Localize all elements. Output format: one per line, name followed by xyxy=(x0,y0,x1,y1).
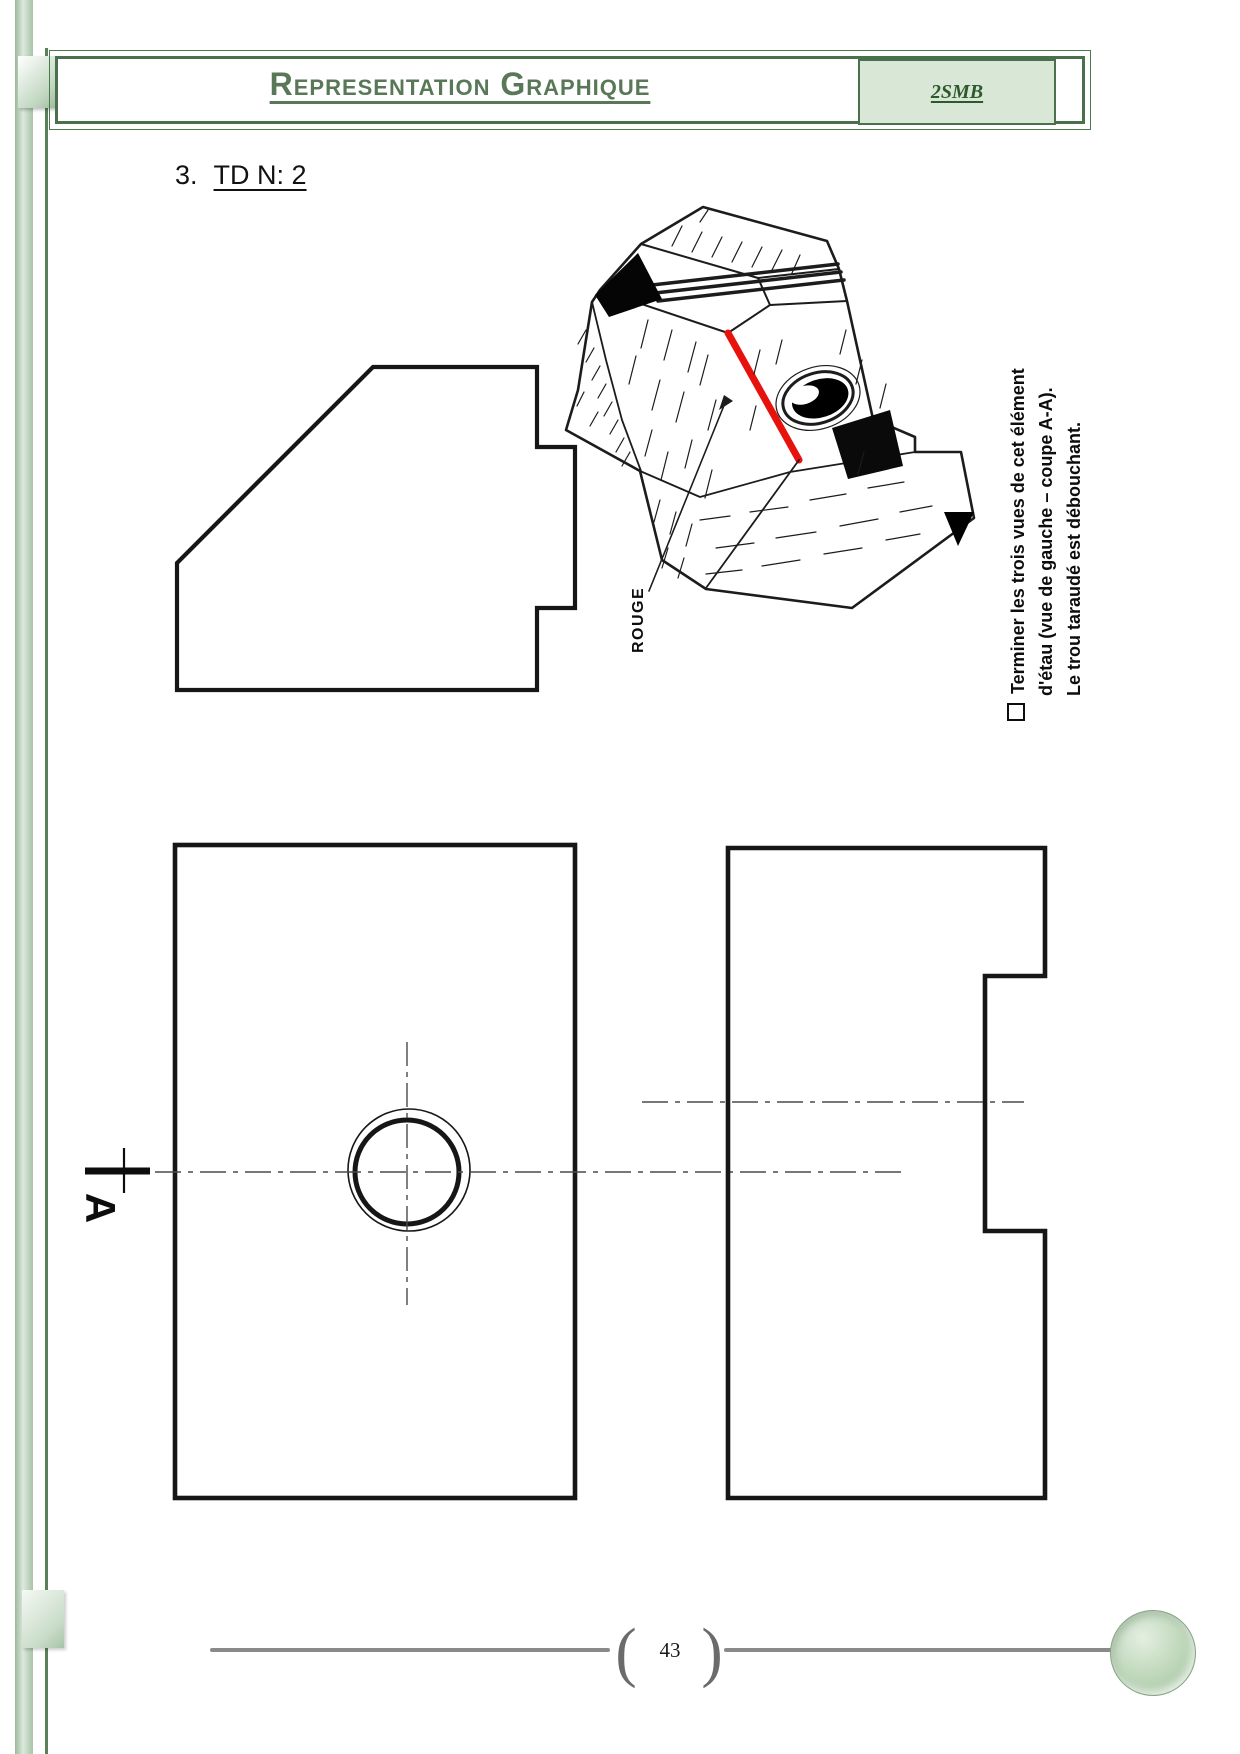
rouge-label: ROUGE xyxy=(630,563,650,653)
document-page: Representation Graphique 2SMB 3. TD N: 2 xyxy=(0,0,1240,1754)
footer-rule-left xyxy=(210,1648,610,1652)
side-view-outline xyxy=(728,848,1045,1498)
instruction-line-2: d'étau (vue de gauche – coupe A-A). xyxy=(1032,201,1060,721)
instruction-line-1: Terminer les trois vues de cet élément xyxy=(1004,201,1032,721)
checkbox-icon xyxy=(1007,703,1025,721)
instruction-line-3: Le trou taraudé est débouchant. xyxy=(1060,201,1088,721)
top-view-outline xyxy=(177,367,575,690)
footer-green-circle-ornament xyxy=(1110,1610,1196,1696)
footer-bracket-left-icon: ( xyxy=(608,1610,644,1694)
pictorial-sketch xyxy=(555,195,985,695)
tapped-hole-outer-circle xyxy=(348,1109,470,1231)
page-number: 43 xyxy=(640,1638,700,1663)
instruction-line-1-text: Terminer les trois vues de cet élément xyxy=(1008,368,1028,694)
footer-rule-right xyxy=(724,1648,1114,1652)
section-letter-a: A xyxy=(78,1186,122,1230)
instruction-text: Terminer les trois vues de cet élément d… xyxy=(1004,201,1090,721)
